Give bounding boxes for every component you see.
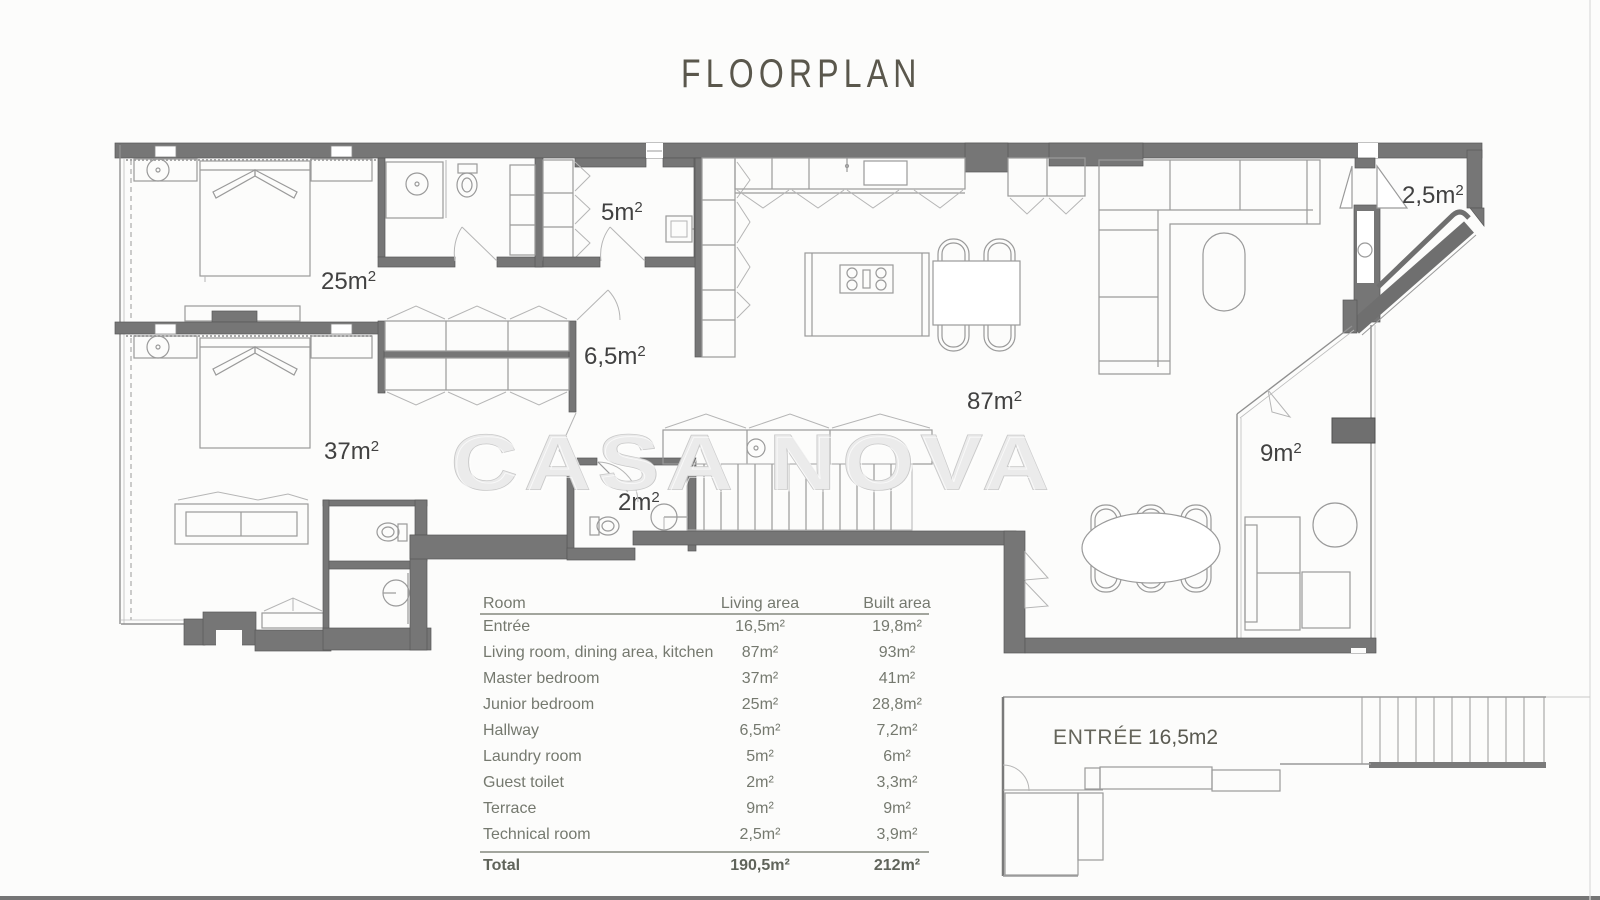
svg-text:Living area: Living area bbox=[721, 595, 799, 612]
svg-text:Room: Room bbox=[483, 595, 526, 612]
svg-text:3,9m²: 3,9m² bbox=[877, 826, 919, 843]
svg-text:Hallway: Hallway bbox=[483, 722, 539, 739]
svg-text:ENTRÉE: ENTRÉE bbox=[1053, 726, 1143, 749]
svg-text:9m²: 9m² bbox=[883, 800, 911, 817]
svg-text:41m²: 41m² bbox=[879, 670, 916, 687]
svg-text:2,5m²: 2,5m² bbox=[740, 826, 782, 843]
svg-text:2,5m2: 2,5m2 bbox=[1402, 182, 1464, 209]
svg-text:28,8m²: 28,8m² bbox=[872, 696, 922, 713]
svg-text:Built area: Built area bbox=[863, 595, 931, 612]
svg-text:93m²: 93m² bbox=[879, 644, 916, 661]
svg-text:5m²: 5m² bbox=[746, 748, 774, 765]
svg-text:2m²: 2m² bbox=[746, 774, 774, 791]
svg-text:16,5m²: 16,5m² bbox=[735, 618, 785, 635]
svg-text:87m²: 87m² bbox=[742, 644, 779, 661]
svg-text:Entrée: Entrée bbox=[483, 618, 530, 635]
svg-text:16,5m2: 16,5m2 bbox=[1148, 726, 1218, 749]
svg-text:Junior bedroom: Junior bedroom bbox=[483, 696, 594, 713]
svg-text:6m²: 6m² bbox=[883, 748, 911, 765]
svg-text:Master bedroom: Master bedroom bbox=[483, 670, 600, 687]
svg-text:Living room, dining area, kitc: Living room, dining area, kitchen bbox=[483, 644, 713, 661]
svg-text:7,2m²: 7,2m² bbox=[877, 722, 919, 739]
svg-text:Terrace: Terrace bbox=[483, 800, 536, 817]
svg-text:Guest toilet: Guest toilet bbox=[483, 774, 564, 791]
svg-text:CASA NOVA: CASA NOVA bbox=[453, 420, 1058, 508]
svg-text:Laundry room: Laundry room bbox=[483, 748, 582, 765]
svg-text:19,8m²: 19,8m² bbox=[872, 618, 922, 635]
svg-text:FLOORPLAN: FLOORPLAN bbox=[681, 51, 922, 96]
svg-text:9m²: 9m² bbox=[746, 800, 774, 817]
svg-text:37m²: 37m² bbox=[742, 670, 779, 687]
svg-text:Total: Total bbox=[483, 857, 520, 874]
svg-text:25m²: 25m² bbox=[742, 696, 779, 713]
svg-text:212m²: 212m² bbox=[874, 857, 920, 874]
svg-text:3,3m²: 3,3m² bbox=[877, 774, 919, 791]
svg-text:Technical room: Technical room bbox=[483, 826, 591, 843]
svg-text:6,5m2: 6,5m2 bbox=[584, 343, 646, 370]
svg-text:6,5m²: 6,5m² bbox=[740, 722, 782, 739]
svg-text:190,5m²: 190,5m² bbox=[730, 857, 790, 874]
